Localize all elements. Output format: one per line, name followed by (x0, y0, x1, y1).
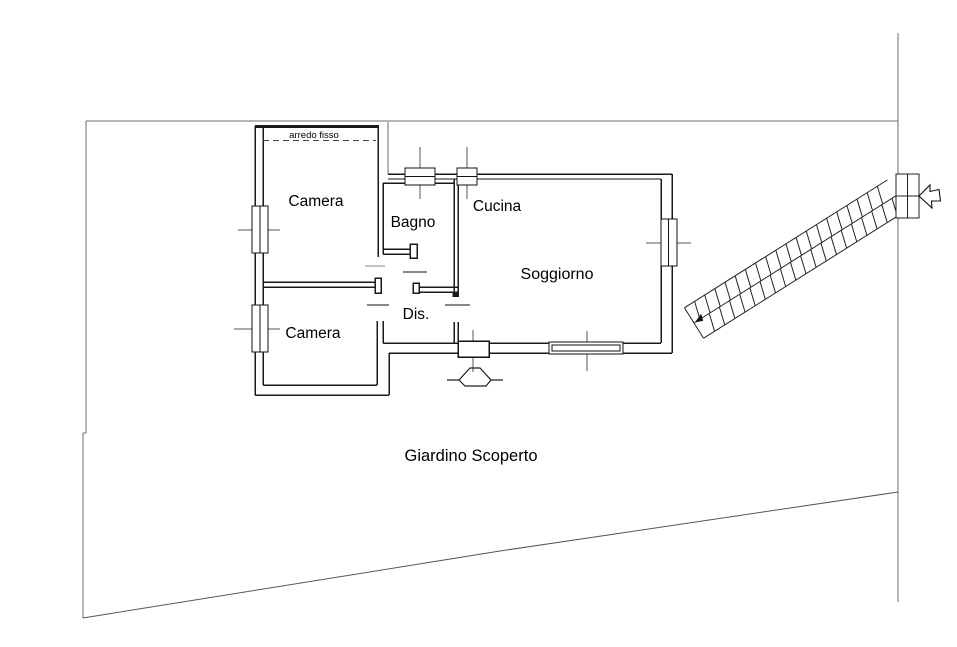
door-jamb (413, 283, 419, 293)
room-label-cucina: Cucina (473, 198, 522, 215)
window-soggiorno-south (549, 342, 623, 354)
stair-step (711, 289, 725, 307)
entrance-arrow-icon (447, 368, 503, 386)
stair-step (796, 256, 810, 274)
entrance-door (447, 341, 503, 386)
room-label-bagno: Bagno (391, 214, 436, 231)
stair-step (847, 224, 861, 242)
stair-step (782, 244, 796, 262)
floor-plan-canvas: arredo fisso (0, 0, 957, 647)
stair-step (751, 263, 765, 281)
window-camera1-west (252, 206, 268, 253)
stair-step (690, 301, 704, 319)
room-labels: Camera Bagno Cucina Soggiorno Camera Dis… (285, 193, 593, 465)
window-bagno-north (405, 168, 435, 185)
stair-step (731, 276, 745, 294)
property-boundary-diagonal (83, 492, 898, 618)
room-label-dis: Dis. (403, 306, 430, 323)
room-label-soggiorno: Soggiorno (521, 266, 594, 283)
stair-step (721, 282, 735, 300)
fixed-furniture-label: arredo fisso (289, 130, 339, 141)
room-label-camera-2: Camera (285, 325, 341, 342)
stair-step (812, 225, 826, 243)
stair-step (776, 269, 790, 287)
stair-step (766, 275, 780, 293)
window-cucina-north (457, 168, 477, 185)
stair-step (863, 193, 877, 211)
stair-step (746, 288, 760, 306)
stair-step (853, 199, 867, 217)
stair-step (761, 257, 775, 275)
entrance-door-symbol (458, 341, 489, 357)
boundary-left (83, 121, 86, 618)
stair-step (725, 301, 739, 319)
property-boundary (83, 33, 898, 618)
wall-bagno-bottom (383, 249, 410, 254)
window-camera2-west (252, 305, 268, 352)
stair-step (802, 231, 816, 249)
fixed-furniture-annotation: arredo fisso (263, 129, 376, 141)
wall-divider (454, 179, 458, 293)
stair-step (756, 281, 770, 299)
stair-band (684, 180, 906, 338)
staircase (684, 174, 940, 338)
wall-camera-partition (263, 282, 375, 287)
stair-step (832, 212, 846, 230)
stair-step (837, 230, 851, 248)
stair-step (786, 262, 800, 280)
wall-corridor-east (454, 322, 458, 343)
stair-step (735, 294, 749, 312)
stair-step (792, 237, 806, 255)
stair-landing (896, 174, 919, 218)
stair-step (772, 250, 786, 268)
stair-stringers (684, 180, 906, 338)
window-soggiorno-east (661, 219, 677, 266)
stair-step (857, 217, 871, 235)
stair-step (817, 243, 831, 261)
stair-step (878, 205, 892, 223)
stair-step (873, 186, 887, 204)
stair-step (807, 249, 821, 267)
stair-step (843, 205, 857, 223)
stair-step (705, 313, 719, 331)
garden-label: Giardino Scoperto (405, 447, 538, 465)
stair-step (822, 218, 836, 236)
stair-step (715, 307, 729, 325)
door-jamb (375, 278, 381, 293)
door-jamb (410, 244, 417, 258)
stair-step (741, 269, 755, 287)
stair-step (700, 295, 714, 313)
stair-direction-arrow-icon (919, 185, 941, 208)
wall-camera2-right (377, 321, 383, 385)
stair-step (867, 211, 881, 229)
stair-step (827, 237, 841, 255)
room-label-camera-1: Camera (288, 193, 344, 210)
